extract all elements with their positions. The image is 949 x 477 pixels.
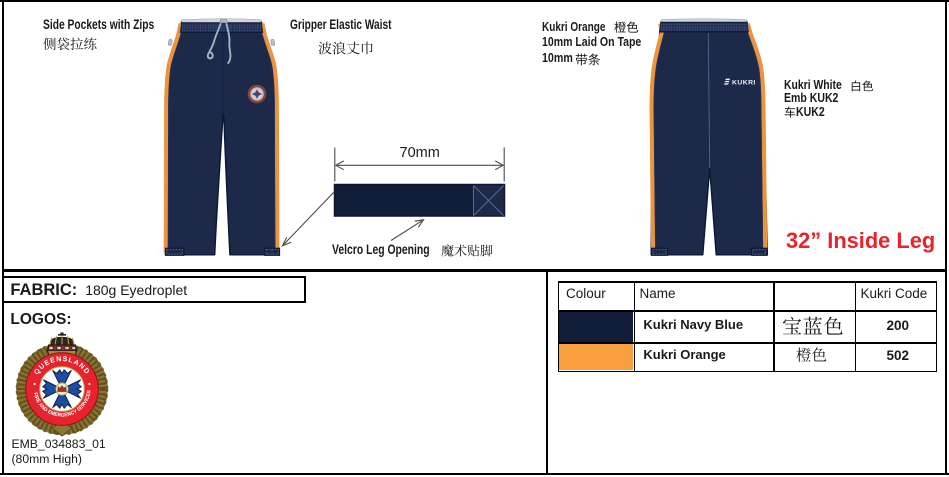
svg-text:KUKRI: KUKRI — [732, 79, 756, 86]
